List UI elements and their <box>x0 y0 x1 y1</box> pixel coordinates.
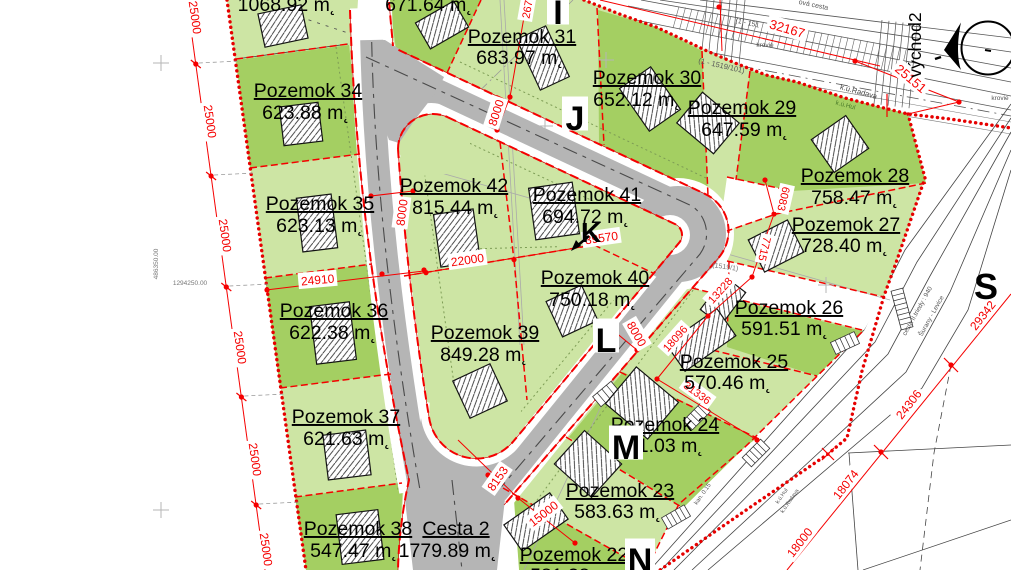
svg-text:622.38 m˛: 622.38 m˛ <box>289 322 377 344</box>
svg-text:Pozemok 39: Pozemok 39 <box>431 322 539 344</box>
svg-text:570.46 m˛: 570.46 m˛ <box>684 372 772 394</box>
svg-text:Pozemok 26: Pozemok 26 <box>735 297 843 319</box>
svg-text:683.97 m˛: 683.97 m˛ <box>476 47 564 69</box>
svg-text:621.63 m˛: 621.63 m˛ <box>303 428 391 450</box>
svg-text:Pozemok 28: Pozemok 28 <box>801 165 909 187</box>
svg-text:Pozemok 40: Pozemok 40 <box>541 267 650 289</box>
svg-text:krovie: krovie <box>991 95 1009 102</box>
svg-text:L: L <box>596 322 617 360</box>
svg-text:Pozemok 23: Pozemok 23 <box>566 480 674 502</box>
svg-text:758.47 m˛: 758.47 m˛ <box>811 187 899 209</box>
svg-text:M: M <box>612 429 640 467</box>
svg-text:Pozemok 38: Pozemok 38 <box>304 518 412 540</box>
svg-text:Pozemok 30: Pozemok 30 <box>593 67 702 89</box>
svg-text:486350.00: 486350.00 <box>153 248 160 279</box>
svg-text:24910: 24910 <box>300 272 335 289</box>
svg-text:Pozemok 34: Pozemok 34 <box>254 80 363 102</box>
svg-text:623.88 m˛: 623.88 m˛ <box>262 102 350 124</box>
svg-text:Pozemok 22: Pozemok 22 <box>520 544 628 566</box>
svg-text:Pozemok 35: Pozemok 35 <box>266 193 375 215</box>
svg-text:581.38 m˛: 581.38 m˛ <box>530 565 618 570</box>
svg-text:krovie: krovie <box>756 42 774 49</box>
svg-text:Pozemok 36: Pozemok 36 <box>280 300 388 322</box>
svg-text:647.59 m˛: 647.59 m˛ <box>701 119 789 141</box>
svg-text:Pozemok 42: Pozemok 42 <box>400 175 508 197</box>
svg-text:Pozemok 29: Pozemok 29 <box>688 97 796 119</box>
svg-text:Pozemok 25: Pozemok 25 <box>680 351 789 373</box>
svg-text:815.44 m˛: 815.44 m˛ <box>412 197 500 219</box>
svg-text:623.13 m˛: 623.13 m˛ <box>276 215 364 237</box>
svg-text:728.40 m˛: 728.40 m˛ <box>801 235 889 257</box>
svg-text:Pozemok 37: Pozemok 37 <box>292 406 400 428</box>
svg-text:652.12 m˛: 652.12 m˛ <box>593 89 681 111</box>
svg-text:N: N <box>628 542 653 570</box>
svg-text:Cesta 2: Cesta 2 <box>422 518 489 540</box>
svg-text:I: I <box>553 0 562 32</box>
svg-text:583.63 m˛: 583.63 m˛ <box>574 501 662 523</box>
svg-text:849.28 m˛: 849.28 m˛ <box>440 344 528 366</box>
svg-text:východ2: východ2 <box>905 12 925 77</box>
svg-text:Pozemok 41: Pozemok 41 <box>533 184 641 206</box>
svg-text:J: J <box>566 100 585 138</box>
svg-text:K: K <box>581 217 601 248</box>
svg-text:671.64 m˛: 671.64 m˛ <box>385 0 473 16</box>
svg-text:1068.92 m˛: 1068.92 m˛ <box>238 0 337 16</box>
svg-text:1294250.00: 1294250.00 <box>173 280 208 287</box>
svg-text:591.51 m˛: 591.51 m˛ <box>741 318 829 340</box>
svg-text:547.47 m˛: 547.47 m˛ <box>310 540 398 562</box>
svg-text:750.18 m˛: 750.18 m˛ <box>549 289 637 311</box>
svg-text:1779.89 m˛: 1779.89 m˛ <box>399 540 498 562</box>
svg-text:S: S <box>974 266 998 307</box>
svg-text:Pozemok 27: Pozemok 27 <box>792 214 900 236</box>
